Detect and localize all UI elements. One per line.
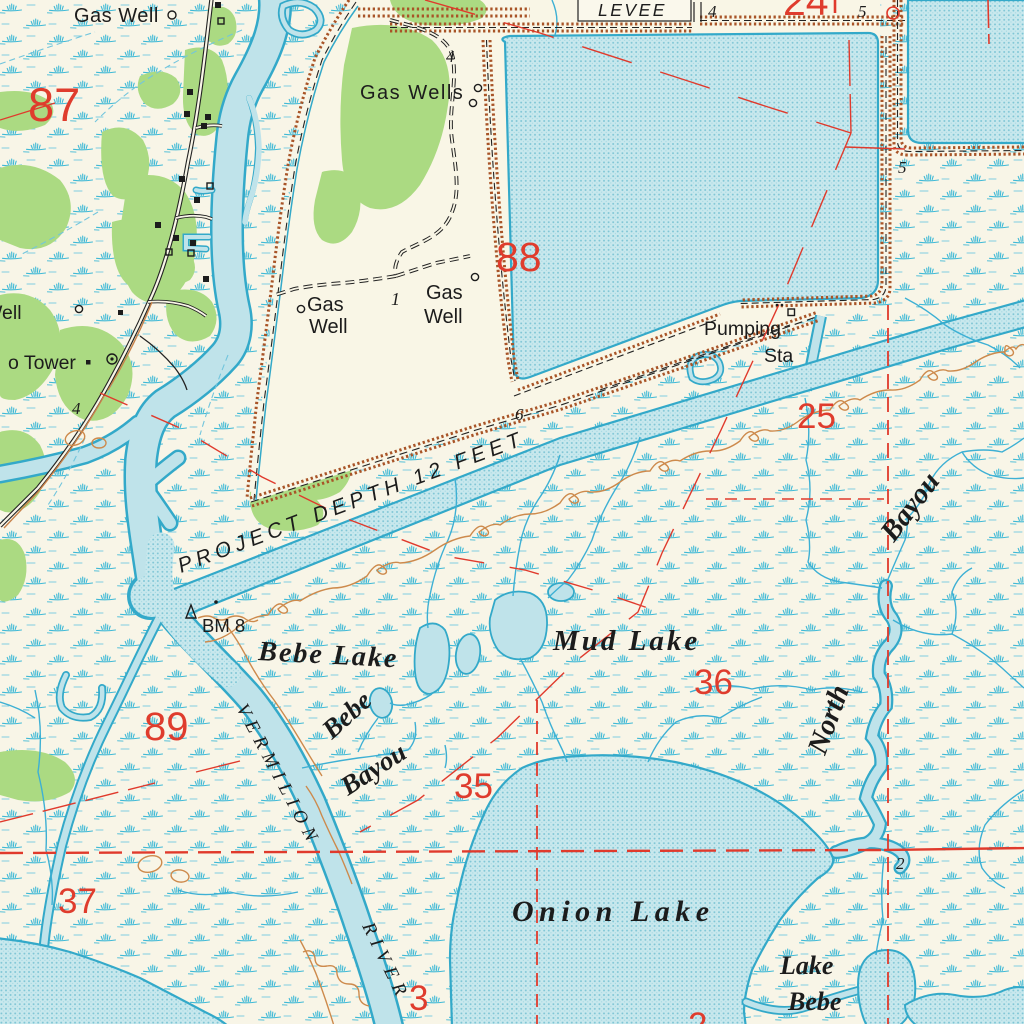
svg-text:87: 87 [28,78,80,131]
svg-text:BM 8: BM 8 [202,615,245,636]
svg-text:Bebe: Bebe [787,987,841,1016]
svg-text:Gas: Gas [426,282,463,304]
svg-text:5: 5 [898,158,907,177]
svg-text:Mud Lake: Mud Lake [552,625,700,657]
svg-text:4: 4 [708,2,717,21]
svg-text:Lake: Lake [779,951,833,980]
svg-text:2: 2 [896,854,905,873]
svg-text:Well: Well [309,316,348,338]
svg-text:Well: Well [0,302,22,324]
svg-text:2: 2 [688,1006,707,1024]
svg-text:Onion Lake: Onion Lake [512,895,715,928]
svg-text:3: 3 [409,979,428,1018]
svg-text:6: 6 [515,405,524,424]
svg-text:4: 4 [72,399,81,418]
svg-text:25: 25 [797,397,836,436]
svg-text:4: 4 [446,47,455,66]
svg-text:Well: Well [424,306,463,328]
svg-text:35: 35 [454,767,493,806]
svg-text:1: 1 [391,289,400,309]
svg-text:37: 37 [58,882,97,921]
svg-text:Gas Well: Gas Well [74,5,159,27]
svg-text:88: 88 [496,234,542,280]
svg-text:Gas Wells: Gas Wells [360,82,464,104]
svg-text:89: 89 [144,705,189,749]
svg-text:5: 5 [858,2,867,21]
svg-text:24: 24 [783,0,829,24]
svg-text:Pumping: Pumping [704,318,781,340]
svg-text:Sta: Sta [764,345,793,367]
svg-text:LEVEE: LEVEE [598,0,667,20]
svg-text:36: 36 [694,663,733,702]
svg-text:Gas: Gas [307,294,344,316]
svg-text:o Tower: o Tower [8,352,76,374]
